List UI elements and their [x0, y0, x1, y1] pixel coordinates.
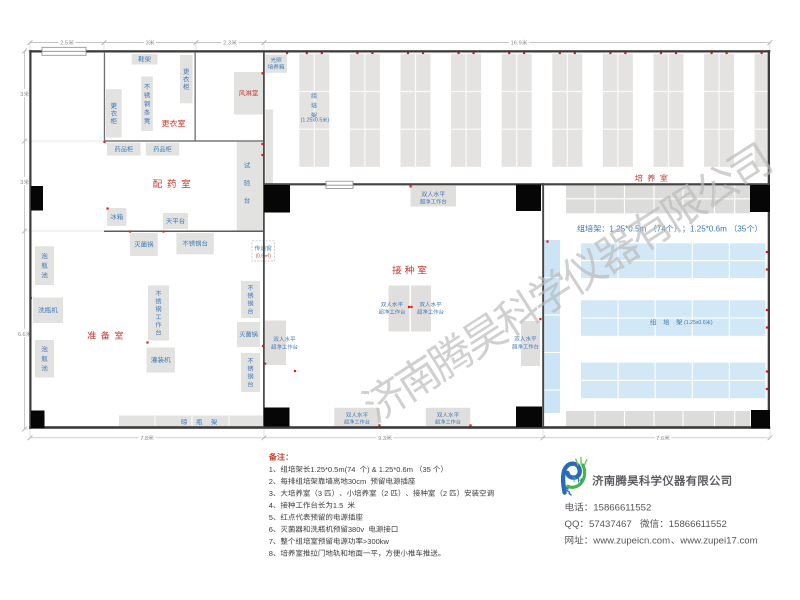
svg-text:7: 7: [269, 537, 273, 546]
svg-text:9.3: 9.3: [378, 436, 386, 442]
svg-text:7.6: 7.6: [656, 436, 664, 442]
svg-text:>300kw: >300kw: [363, 537, 390, 546]
svg-text:35: 35: [737, 225, 747, 234]
svg-text:3: 3: [146, 41, 149, 47]
svg-text:): ): [711, 320, 713, 326]
svg-text:4: 4: [269, 501, 273, 510]
svg-text:15866611552: 15866611552: [593, 503, 651, 514]
svg-text:3: 3: [269, 489, 273, 498]
svg-text:1: 1: [269, 465, 273, 474]
svg-text:2.3: 2.3: [223, 41, 231, 47]
svg-text:2: 2: [443, 489, 447, 498]
svg-text:2.5: 2.5: [60, 41, 68, 47]
svg-text:(1.25x0.6: (1.25x0.6: [684, 320, 706, 326]
svg-text:3: 3: [20, 92, 23, 98]
svg-text:H: H: [578, 479, 582, 485]
svg-text:8: 8: [269, 549, 273, 558]
svg-text:57437467: 57437467: [589, 519, 632, 530]
svg-text:(1.25x0.5: (1.25x0.5: [301, 118, 323, 124]
svg-text:1.25*0.5m(74: 1.25*0.5m(74: [310, 465, 355, 474]
svg-text:): ): [328, 118, 330, 124]
svg-text:2: 2: [384, 489, 388, 498]
svg-text:30cm: 30cm: [348, 477, 366, 486]
svg-text:15866611552: 15866611552: [669, 519, 727, 530]
svg-text:35: 35: [423, 465, 431, 474]
svg-text:1.25*0.6m: 1.25*0.6m: [690, 225, 727, 234]
svg-text:) & 1.25*0.6m: ) & 1.25*0.6m: [367, 465, 413, 474]
svg-text:T: T: [572, 478, 576, 484]
svg-text:2: 2: [269, 477, 273, 486]
svg-text:www.zupeicn.com: www.zupeicn.com: [592, 536, 670, 547]
svg-text:www.zupei17.com: www.zupei17.com: [679, 536, 757, 547]
svg-text:16.9: 16.9: [511, 41, 522, 47]
svg-text:7.8: 7.8: [140, 436, 148, 442]
svg-text:1.5: 1.5: [333, 501, 343, 510]
svg-text:3: 3: [20, 180, 23, 186]
svg-text:6.6: 6.6: [18, 332, 26, 338]
svg-text:QQ: QQ: [565, 519, 580, 530]
svg-text:380v: 380v: [348, 525, 365, 534]
svg-text:6: 6: [269, 525, 273, 534]
svg-text:5: 5: [269, 513, 273, 522]
svg-text:3: 3: [318, 489, 322, 498]
